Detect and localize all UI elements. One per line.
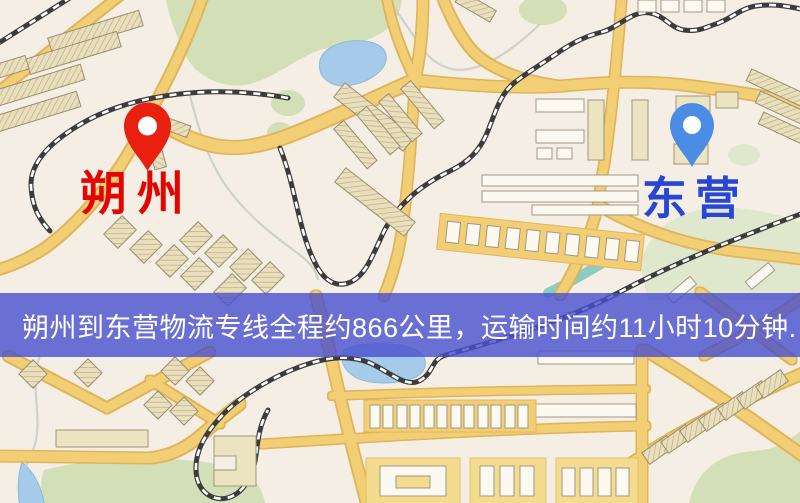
bottom-blocks — [366, 458, 638, 503]
route-info-text: 朔州到东营物流专线全程约866公里，运输时间约11小时10分钟. — [22, 306, 797, 345]
origin-label: 朔州 — [80, 170, 194, 217]
route-info-banner: 朔州到东营物流专线全程约866公里，运输时间约11小时10分钟. — [0, 293, 800, 357]
destination-label: 东营 — [642, 176, 748, 221]
bottom-strip — [364, 400, 536, 432]
logistics-route-map: 朔州 东营 朔州到东营物流专线全程约866公里，运输时间约11小时10分钟. — [0, 0, 800, 503]
map-base — [0, 0, 800, 503]
